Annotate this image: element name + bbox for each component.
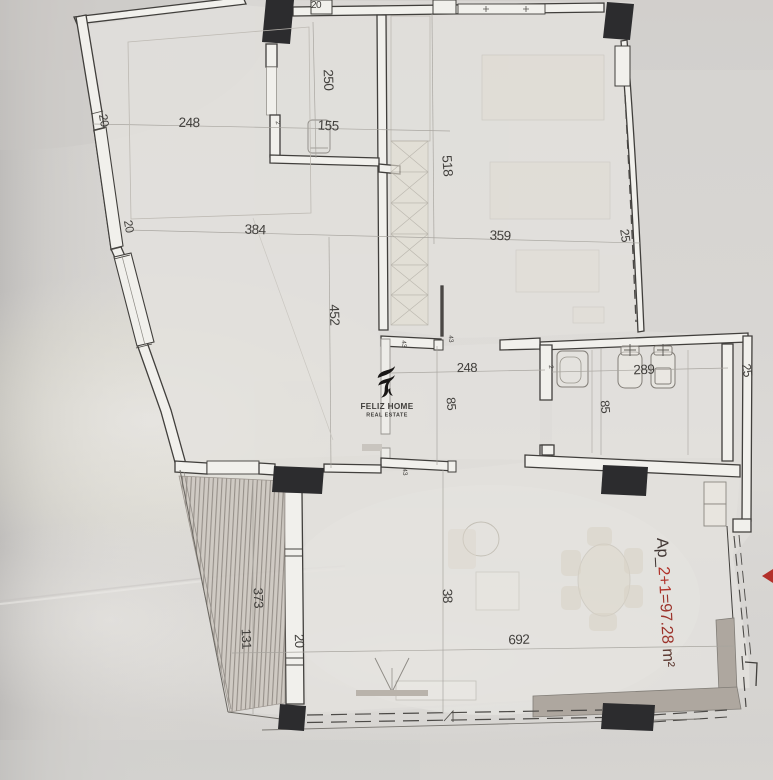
svg-text:43: 43 xyxy=(447,335,454,343)
svg-text:38: 38 xyxy=(440,589,455,604)
svg-text:518: 518 xyxy=(439,155,455,177)
svg-text:155: 155 xyxy=(317,117,339,133)
svg-text:20: 20 xyxy=(311,0,322,11)
svg-text:43: 43 xyxy=(400,340,407,348)
svg-text:250: 250 xyxy=(321,69,337,91)
svg-text:359: 359 xyxy=(489,228,511,244)
svg-text:289: 289 xyxy=(633,362,655,378)
svg-text:20: 20 xyxy=(292,634,307,648)
svg-text:452: 452 xyxy=(327,304,343,326)
svg-text:248: 248 xyxy=(178,115,199,130)
svg-text:248: 248 xyxy=(457,360,478,375)
svg-text:384: 384 xyxy=(244,222,267,238)
svg-text:373: 373 xyxy=(251,587,267,608)
svg-text:25: 25 xyxy=(617,228,633,243)
svg-text:131: 131 xyxy=(239,628,255,649)
svg-text:REAL ESTATE: REAL ESTATE xyxy=(366,413,408,419)
svg-text:43: 43 xyxy=(401,468,408,476)
svg-text:FELIZ HOME: FELIZ HOME xyxy=(360,402,413,411)
svg-text:85: 85 xyxy=(443,397,458,412)
svg-text:85: 85 xyxy=(597,400,612,415)
svg-text:692: 692 xyxy=(508,632,530,648)
